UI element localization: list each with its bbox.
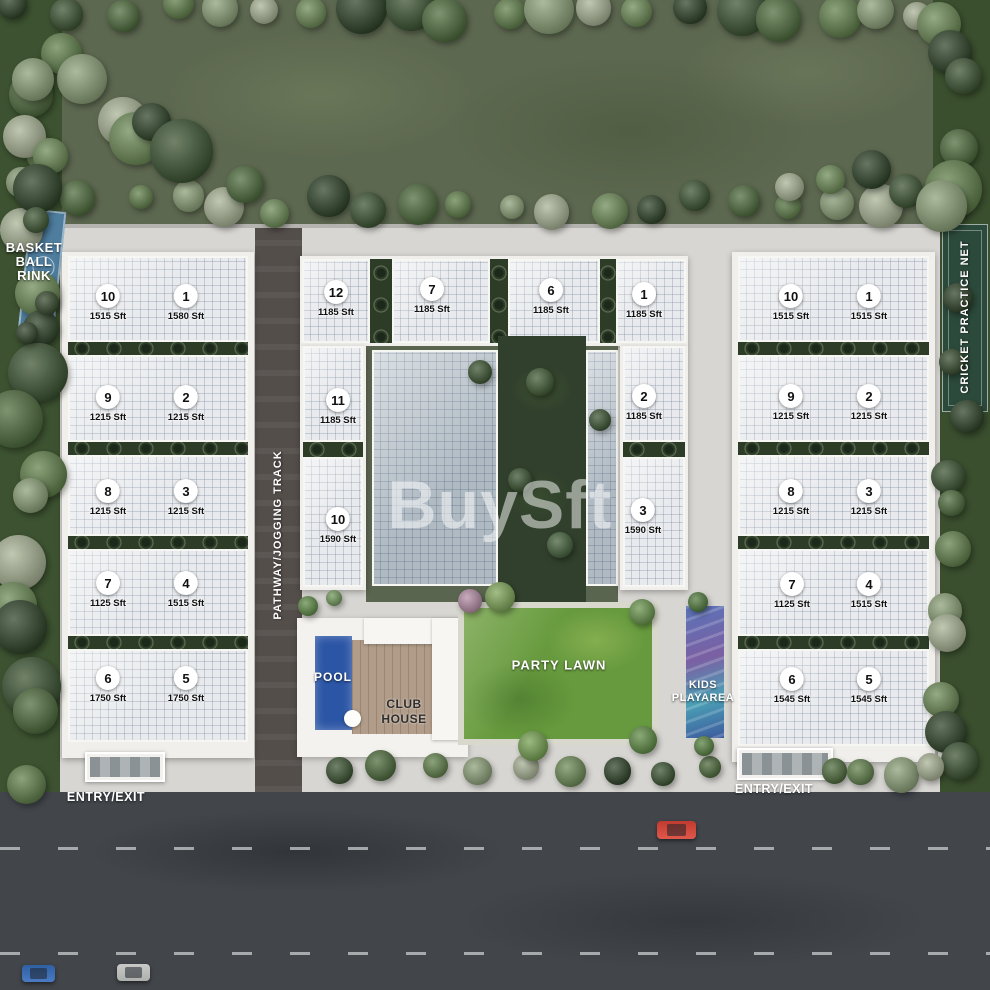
kids-play-area	[686, 606, 724, 738]
unit-number-badge: 1	[857, 284, 881, 308]
road	[0, 792, 990, 990]
unit-number-badge: 8	[779, 479, 803, 503]
unit-marker: 21185 Sft	[626, 384, 662, 422]
unit-number-badge: 7	[780, 572, 804, 596]
lane-divider	[0, 847, 990, 850]
unit-number-badge: 1	[632, 282, 656, 306]
tree	[884, 757, 919, 792]
unit-number-badge: 1	[174, 284, 198, 308]
tree	[326, 757, 353, 784]
unit-area-label: 1125 Sft	[774, 599, 810, 610]
tree	[50, 0, 83, 31]
tree	[35, 291, 59, 315]
unit-number-badge: 10	[96, 284, 120, 308]
car-windshield	[667, 824, 687, 836]
unit-area-label: 1590 Sft	[625, 525, 661, 536]
unit-marker: 31590 Sft	[625, 498, 661, 536]
tree	[107, 0, 140, 32]
unit-marker: 31215 Sft	[168, 479, 204, 517]
pool-label: POOL	[314, 670, 352, 684]
tree	[365, 750, 396, 781]
unit-number-badge: 2	[632, 384, 656, 408]
tree	[518, 731, 548, 761]
tree	[500, 195, 524, 219]
tree	[822, 758, 848, 784]
unit-number-badge: 6	[780, 667, 804, 691]
unit-area-label: 1515 Sft	[90, 311, 126, 322]
unit-marker: 101590 Sft	[320, 507, 356, 545]
basketball-rink-label: BASKET BALL RINK	[6, 241, 62, 283]
unit-marker: 11580 Sft	[168, 284, 204, 322]
kids-label-line: KIDS	[672, 679, 735, 692]
right-block-roof	[738, 455, 929, 536]
unit-marker: 11185 Sft	[626, 282, 662, 320]
unit-marker: 91215 Sft	[773, 384, 809, 422]
hedge-strip	[68, 636, 248, 649]
unit-area-label: 1185 Sft	[533, 305, 569, 316]
hedge-strip	[738, 536, 929, 549]
tree	[728, 185, 760, 217]
tree	[555, 756, 586, 787]
clubhouse-label-line: CLUB	[381, 697, 426, 712]
unit-number-badge: 6	[96, 666, 120, 690]
unit-marker: 31215 Sft	[851, 479, 887, 517]
tree	[445, 191, 472, 218]
tree	[13, 478, 48, 513]
hedge-strip	[68, 342, 248, 355]
car-windshield	[30, 968, 47, 979]
tree	[950, 400, 983, 433]
unit-number-badge: 3	[174, 479, 198, 503]
unit-marker: 61185 Sft	[533, 278, 569, 316]
tree	[694, 736, 714, 756]
unit-number-badge: 9	[96, 385, 120, 409]
unit-area-label: 1515 Sft	[773, 311, 809, 322]
tree	[629, 599, 655, 625]
tree	[847, 759, 873, 785]
tree	[945, 58, 982, 95]
unit-marker: 41515 Sft	[851, 572, 887, 610]
tree	[688, 592, 708, 612]
tree	[458, 589, 482, 613]
tree	[494, 0, 525, 29]
white-car	[117, 964, 150, 981]
middle-right-wing	[620, 346, 688, 590]
unit-number-badge: 2	[174, 385, 198, 409]
unit-number-badge: 3	[631, 498, 655, 522]
hedge-strip	[738, 442, 929, 455]
unit-marker: 121185 Sft	[318, 280, 354, 318]
watermark: BuySft	[387, 466, 612, 544]
kids-playarea-label: KIDS PLAYAREA	[672, 679, 735, 705]
tree	[23, 207, 49, 233]
unit-area-label: 1515 Sft	[851, 311, 887, 322]
tree	[468, 360, 492, 384]
unit-number-badge: 10	[326, 507, 350, 531]
tree	[756, 0, 802, 42]
tree	[699, 756, 721, 778]
unit-area-label: 1580 Sft	[168, 311, 204, 322]
unit-area-label: 1185 Sft	[320, 415, 356, 426]
tree	[150, 119, 214, 183]
unit-area-label: 1750 Sft	[168, 693, 204, 704]
kids-label-line: PLAYAREA	[672, 692, 735, 705]
tree	[7, 765, 46, 804]
lane-divider	[0, 952, 990, 955]
unit-marker: 21215 Sft	[168, 385, 204, 423]
tree	[226, 166, 263, 203]
unit-marker: 81215 Sft	[773, 479, 809, 517]
unit-area-label: 1590 Sft	[320, 534, 356, 545]
hedge-strip	[370, 259, 392, 343]
tree	[941, 742, 978, 779]
hedge-strip	[490, 259, 508, 343]
gate-structure	[90, 757, 160, 777]
right-block-roof	[738, 549, 929, 636]
tree	[819, 0, 861, 38]
hedge-strip	[68, 442, 248, 455]
unit-area-label: 1215 Sft	[773, 411, 809, 422]
unit-marker: 91215 Sft	[90, 385, 126, 423]
right-block	[732, 252, 935, 762]
unit-marker: 41515 Sft	[168, 571, 204, 609]
unit-number-badge: 8	[96, 479, 120, 503]
entry-exit-right-label: ENTRY/EXIT	[735, 782, 813, 796]
unit-area-label: 1185 Sft	[626, 309, 662, 320]
tree	[534, 194, 570, 230]
tree	[60, 180, 95, 215]
entry-exit-left-label: ENTRY/EXIT	[67, 790, 145, 804]
tree	[326, 590, 342, 606]
hedge-strip	[303, 442, 363, 457]
unit-number-badge: 4	[174, 571, 198, 595]
tree	[938, 490, 965, 517]
basketball-label-line: BALL	[6, 255, 62, 269]
unit-number-badge: 5	[174, 666, 198, 690]
tree	[916, 180, 968, 232]
middle-left-wing	[300, 346, 366, 590]
clubhouse-label: CLUB HOUSE	[381, 697, 426, 727]
unit-area-label: 1215 Sft	[851, 506, 887, 517]
unit-marker: 111185 Sft	[320, 388, 356, 426]
clubhouse-label-line: HOUSE	[381, 712, 426, 727]
tree	[931, 460, 964, 493]
unit-area-label: 1215 Sft	[851, 411, 887, 422]
unit-area-label: 1215 Sft	[90, 412, 126, 423]
basketball-label-line: RINK	[6, 269, 62, 283]
tree	[398, 184, 438, 224]
right-block-roof	[738, 649, 929, 746]
unit-marker: 51545 Sft	[851, 667, 887, 705]
unit-number-badge: 10	[779, 284, 803, 308]
hedge-strip	[600, 259, 616, 343]
tree	[589, 409, 611, 431]
tree	[917, 753, 944, 780]
unit-number-badge: 2	[857, 384, 881, 408]
unit-marker: 61750 Sft	[90, 666, 126, 704]
unit-marker: 71125 Sft	[774, 572, 810, 610]
right-block-roof	[738, 256, 929, 342]
tree	[463, 757, 491, 785]
unit-area-label: 1515 Sft	[168, 598, 204, 609]
cricket-net-label: CRICKET PRACTICE NET	[959, 240, 971, 393]
tree	[526, 368, 554, 396]
unit-area-label: 1185 Sft	[414, 304, 450, 315]
tree	[12, 58, 55, 101]
entry-gate-right	[737, 748, 833, 780]
hedge-strip	[738, 636, 929, 649]
unit-area-label: 1545 Sft	[774, 694, 810, 705]
tree	[485, 582, 515, 612]
tree	[935, 531, 971, 567]
unit-area-label: 1215 Sft	[773, 506, 809, 517]
unit-area-label: 1215 Sft	[168, 506, 204, 517]
unit-number-badge: 7	[96, 571, 120, 595]
tree	[604, 757, 631, 784]
unit-area-label: 1750 Sft	[90, 693, 126, 704]
unit-number-badge: 5	[857, 667, 881, 691]
unit-marker: 101515 Sft	[773, 284, 809, 322]
blue-car	[22, 965, 55, 982]
unit-marker: 61545 Sft	[774, 667, 810, 705]
tree	[629, 726, 657, 754]
tree	[637, 195, 666, 224]
tree	[298, 596, 318, 616]
tree	[651, 762, 674, 785]
unit-area-label: 1185 Sft	[626, 411, 662, 422]
tree	[852, 150, 891, 189]
unit-number-badge: 9	[779, 384, 803, 408]
party-lawn-label: PARTY LAWN	[512, 658, 607, 673]
unit-number-badge: 4	[857, 572, 881, 596]
tree	[928, 614, 966, 652]
site-plan-canvas: BASKET BALL RINK PATHWAY/JOGGING TRACK C…	[0, 0, 990, 990]
unit-marker: 11515 Sft	[851, 284, 887, 322]
hedge-strip	[738, 342, 929, 355]
tree	[775, 173, 803, 201]
tree	[57, 54, 107, 104]
pool-umbrella	[344, 710, 361, 727]
unit-number-badge: 12	[324, 280, 348, 304]
unit-number-badge: 3	[857, 479, 881, 503]
red-car	[657, 821, 696, 839]
unit-number-badge: 6	[539, 278, 563, 302]
unit-marker: 51750 Sft	[168, 666, 204, 704]
tree	[307, 175, 349, 217]
unit-area-label: 1515 Sft	[851, 599, 887, 610]
unit-marker: 81215 Sft	[90, 479, 126, 517]
entry-gate-left	[85, 752, 165, 782]
unit-number-badge: 7	[420, 277, 444, 301]
unit-area-label: 1215 Sft	[168, 412, 204, 423]
unit-marker: 101515 Sft	[90, 284, 126, 322]
unit-area-label: 1185 Sft	[318, 307, 354, 318]
basketball-label-line: BASKET	[6, 241, 62, 255]
hedge-strip	[623, 442, 685, 457]
unit-area-label: 1215 Sft	[90, 506, 126, 517]
unit-area-label: 1545 Sft	[851, 694, 887, 705]
tree	[173, 180, 205, 212]
jogging-track-label: PATHWAY/JOGGING TRACK	[272, 450, 284, 619]
tree	[423, 753, 448, 778]
tree	[592, 193, 628, 229]
right-block-roof	[738, 355, 929, 442]
unit-marker: 71185 Sft	[414, 277, 450, 315]
tree	[350, 192, 386, 228]
hedge-strip	[68, 536, 248, 549]
party-lawn	[458, 602, 658, 745]
car-windshield	[125, 967, 142, 978]
unit-area-label: 1125 Sft	[90, 598, 126, 609]
unit-marker: 71125 Sft	[90, 571, 126, 609]
gate-structure	[742, 753, 828, 775]
unit-number-badge: 11	[326, 388, 350, 412]
tree	[16, 322, 38, 344]
unit-marker: 21215 Sft	[851, 384, 887, 422]
